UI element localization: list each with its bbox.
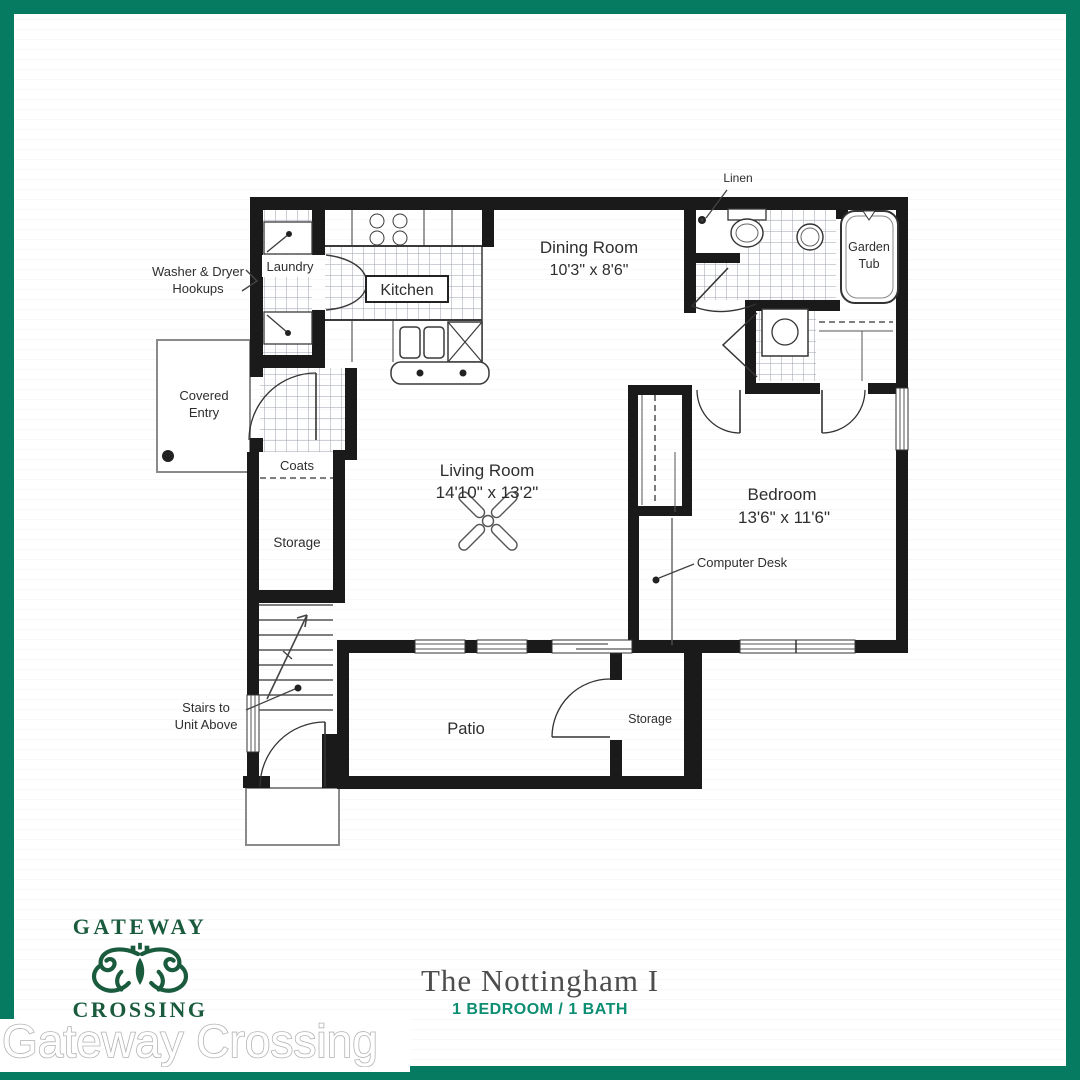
label-storage-patio: Storage bbox=[628, 712, 672, 726]
label-stairs-2: Unit Above bbox=[175, 717, 238, 732]
label-coats: Coats bbox=[280, 458, 314, 473]
label-living-room: Living Room bbox=[440, 461, 535, 480]
label-living-dims: 14'10" x 13'2" bbox=[436, 483, 539, 502]
label-bedroom-dims: 13'6" x 11'6" bbox=[738, 508, 830, 527]
entry-post-dot bbox=[162, 450, 174, 462]
label-storage-closet: Storage bbox=[273, 535, 320, 550]
watermark: Gateway Crossing bbox=[0, 1019, 410, 1072]
watermark-text: Gateway Crossing bbox=[2, 1019, 378, 1067]
label-kitchen: Kitchen bbox=[380, 282, 433, 299]
label-bedroom: Bedroom bbox=[748, 485, 817, 504]
label-linen: Linen bbox=[723, 171, 752, 185]
label-covered-entry-1: Covered bbox=[179, 388, 228, 403]
label-garden-tub-2: Tub bbox=[858, 257, 879, 271]
label-washer-dryer-2: Hookups bbox=[172, 281, 224, 296]
plan-title: The Nottingham I bbox=[0, 963, 1080, 999]
logo-word-gateway: GATEWAY bbox=[50, 916, 230, 938]
label-garden-tub-1: Garden bbox=[848, 240, 890, 254]
label-laundry: Laundry bbox=[267, 259, 314, 274]
label-covered-entry-2: Entry bbox=[189, 405, 220, 420]
label-washer-dryer-1: Washer & Dryer bbox=[152, 264, 245, 279]
plan-specs: 1 BEDROOM / 1 BATH bbox=[0, 1001, 1080, 1019]
label-computer-desk: Computer Desk bbox=[697, 555, 788, 570]
label-dining-room: Dining Room bbox=[540, 238, 638, 257]
label-dining-dims: 10'3" x 8'6" bbox=[550, 262, 629, 279]
label-stairs-1: Stairs to bbox=[182, 700, 230, 715]
label-patio: Patio bbox=[447, 720, 485, 738]
flyer-page: { "border_color": "#077a62", "floor_plan… bbox=[0, 0, 1080, 1080]
